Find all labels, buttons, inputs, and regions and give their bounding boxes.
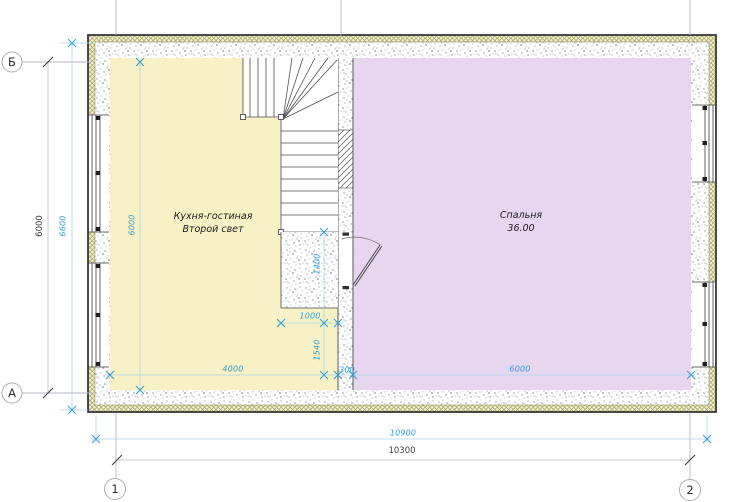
stair-base-wall: [281, 232, 338, 308]
dim-kitchen-height: 6000: [128, 214, 137, 235]
floor-plan-sheet: Кухня-гостиная Второй свет Спальня 36.00…: [0, 0, 737, 502]
dim-outer-height: 6600: [59, 215, 68, 236]
window-right-1: [692, 105, 715, 182]
bedroom-room-label: Спальня 36.00: [500, 209, 542, 235]
dim-stair-landing: 1400: [313, 253, 322, 274]
window-left-1: [89, 115, 109, 232]
axis-label-b: Б: [8, 55, 16, 69]
dim-bedroom-width: 6000: [509, 365, 530, 374]
dim-outer-width: 10900: [390, 429, 416, 438]
kitchen-room-label: Кухня-гостиная Второй свет: [174, 210, 253, 236]
window-left-2: [89, 263, 109, 367]
axis-label-a: А: [8, 386, 16, 400]
axis-label-2: 2: [686, 483, 693, 497]
dim-axis-height: 6000: [35, 215, 45, 237]
kitchen-room-subtitle: Второй свет: [174, 223, 253, 236]
dim-below-landing: 1540: [313, 339, 322, 360]
floor-plan-canvas: [0, 0, 737, 502]
interior-partition-wall: [338, 58, 353, 390]
kitchen-room-name: Кухня-гостиная: [174, 210, 253, 223]
dim-stair-width: 1000: [299, 312, 320, 321]
dim-axis-width: 10300: [388, 446, 415, 456]
dim-kitchen-width: 4000: [222, 365, 243, 374]
window-right-2: [692, 282, 715, 367]
bedroom-room-area: 36.00: [500, 222, 542, 235]
dim-partition-thickness: 300: [339, 366, 355, 375]
bedroom-room-name: Спальня: [500, 209, 542, 222]
axis-label-1: 1: [111, 482, 118, 496]
